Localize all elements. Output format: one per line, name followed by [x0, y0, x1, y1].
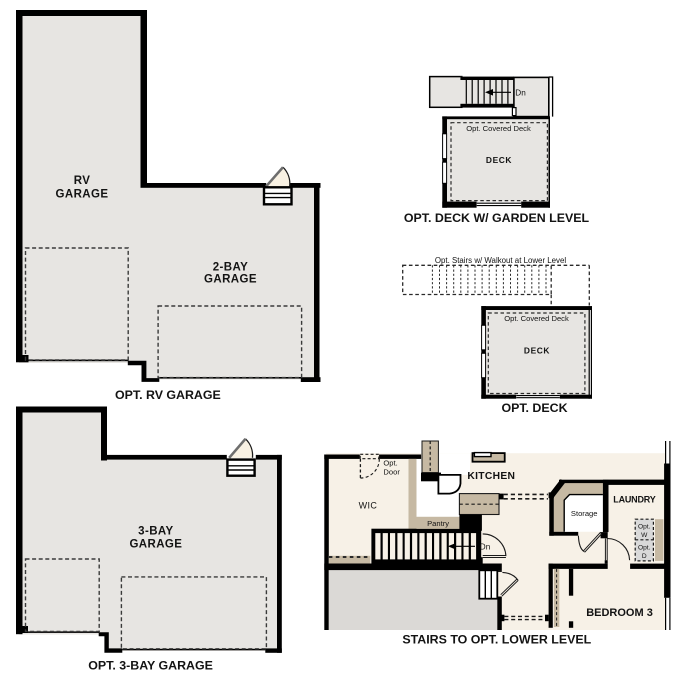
svg-text:STAIRS TO OPT. LOWER LEVEL: STAIRS TO OPT. LOWER LEVEL — [402, 633, 591, 647]
svg-text:OPT. DECK: OPT. DECK — [501, 401, 567, 415]
svg-text:BEDROOM 3: BEDROOM 3 — [586, 607, 653, 619]
svg-text:GARAGE: GARAGE — [56, 189, 109, 201]
svg-text:OPT. 3-BAY GARAGE: OPT. 3-BAY GARAGE — [88, 658, 213, 672]
svg-text:DECK: DECK — [486, 155, 512, 165]
svg-text:Opt. Covered Deck: Opt. Covered Deck — [466, 124, 531, 133]
svg-text:OPT. RV GARAGE: OPT. RV GARAGE — [115, 388, 221, 402]
svg-text:2-BAY: 2-BAY — [213, 261, 248, 273]
svg-text:KITCHEN: KITCHEN — [467, 471, 515, 482]
svg-text:GARAGE: GARAGE — [129, 538, 182, 550]
svg-text:Door: Door — [383, 468, 400, 477]
svg-text:WIC: WIC — [359, 501, 378, 511]
svg-text:Opt. Covered Deck: Opt. Covered Deck — [504, 314, 569, 323]
svg-text:LAUNDRY: LAUNDRY — [613, 495, 655, 505]
svg-text:Opt.: Opt. — [383, 458, 397, 467]
svg-text:DECK: DECK — [524, 345, 550, 355]
svg-text:RV: RV — [74, 175, 91, 187]
svg-text:Dn: Dn — [515, 89, 526, 98]
svg-text:Opt.: Opt. — [638, 544, 651, 551]
svg-text:3-BAY: 3-BAY — [138, 525, 173, 537]
svg-text:Opt. Stairs w/ Walkout at Lowe: Opt. Stairs w/ Walkout at Lower Level — [435, 256, 567, 265]
svg-text:GARAGE: GARAGE — [204, 273, 257, 285]
svg-text:Pantry: Pantry — [427, 519, 449, 528]
svg-text:D: D — [642, 553, 647, 560]
svg-text:Opt.: Opt. — [638, 523, 651, 530]
svg-text:Dn: Dn — [480, 543, 491, 552]
svg-text:OPT. DECK W/ GARDEN LEVEL: OPT. DECK W/ GARDEN LEVEL — [404, 211, 590, 225]
svg-text:Storage: Storage — [571, 509, 598, 518]
svg-text:W: W — [641, 532, 648, 539]
